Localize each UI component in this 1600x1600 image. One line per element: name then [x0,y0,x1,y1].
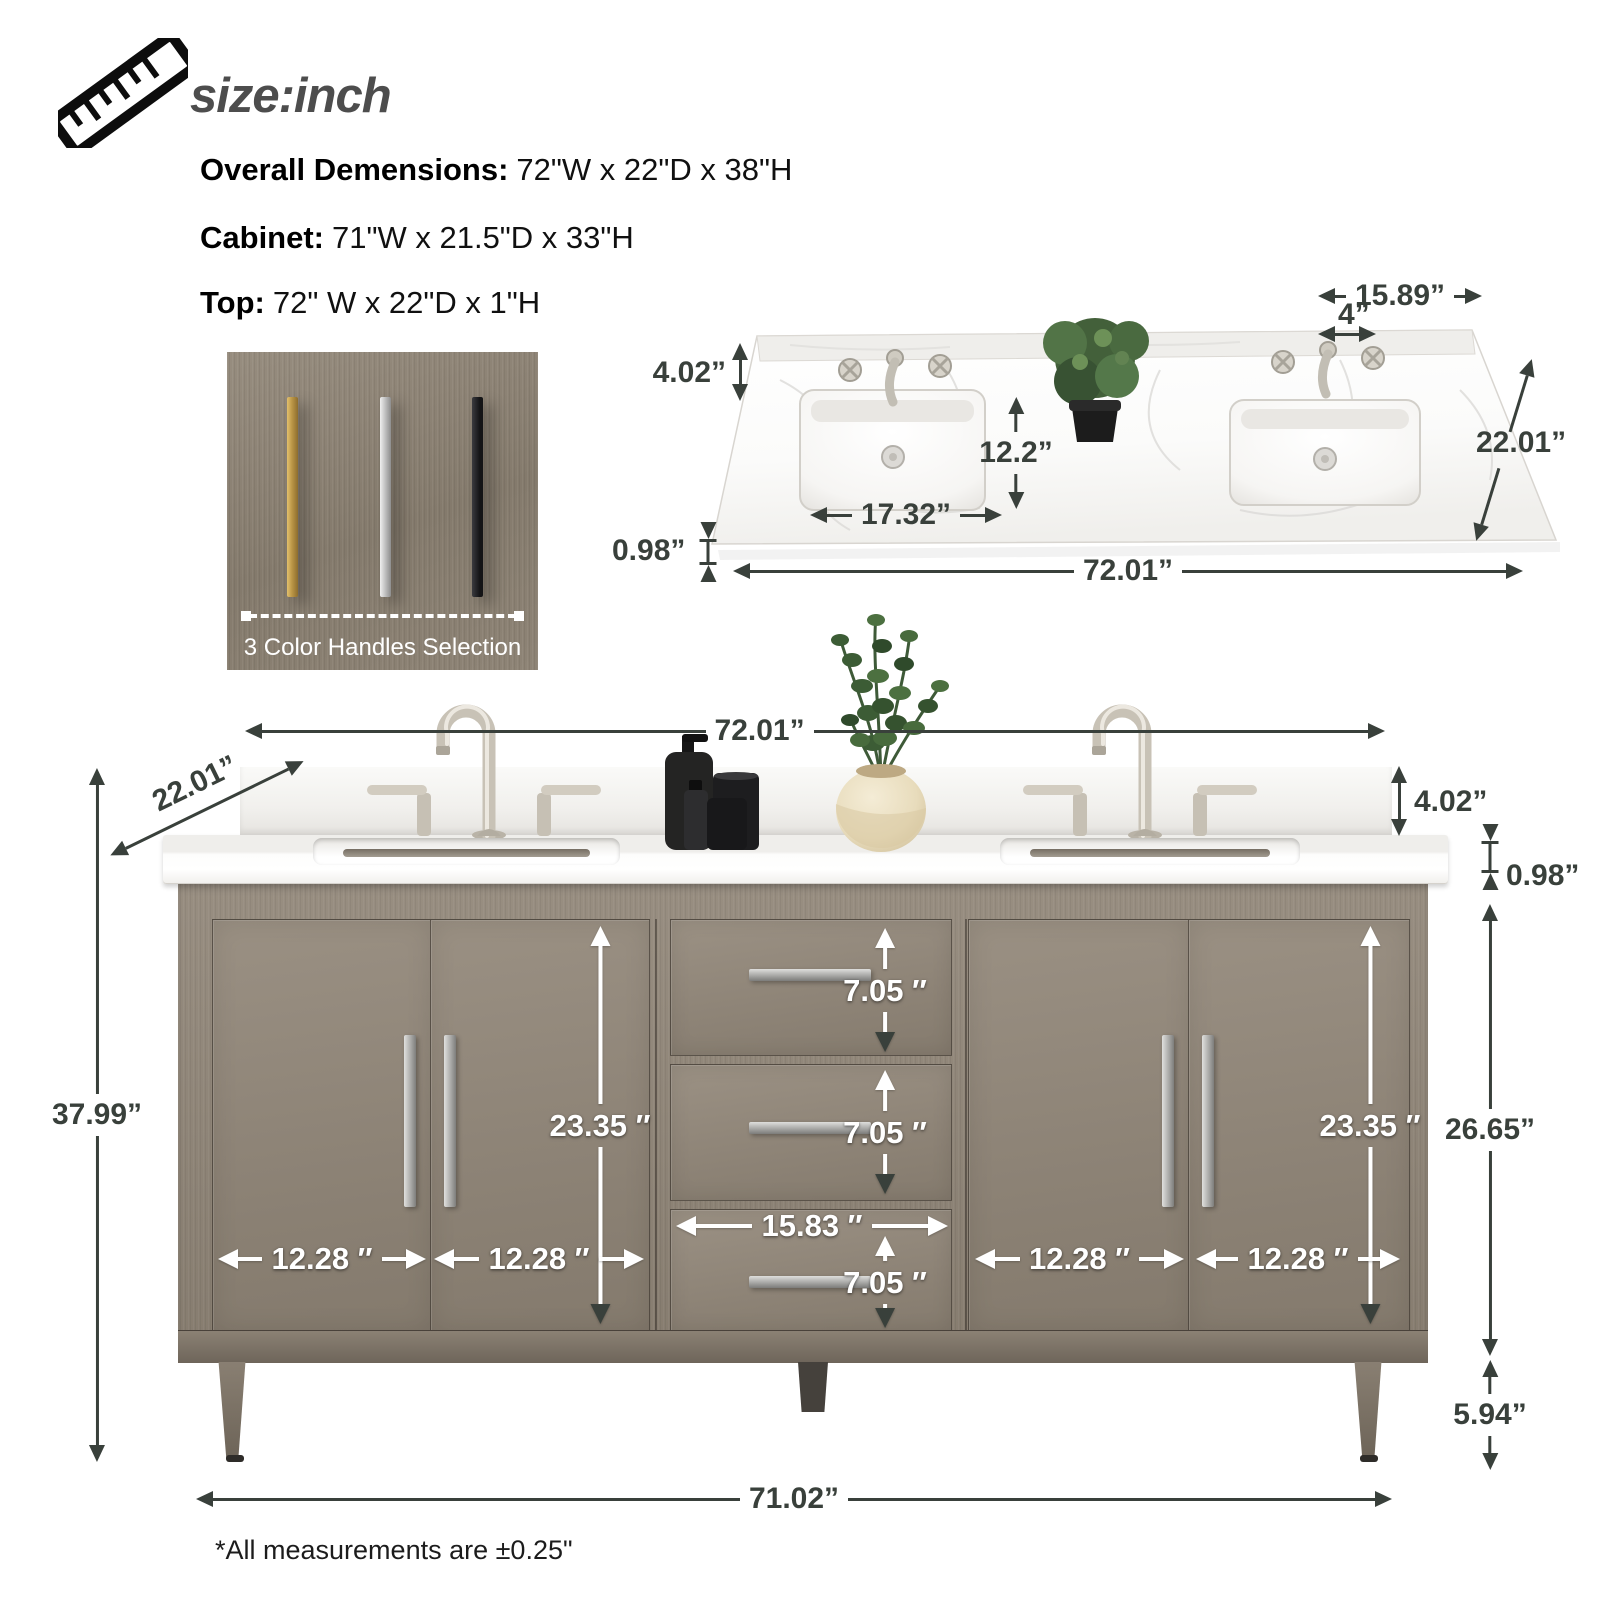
dim-drawer-2: 7.05 ″ [841,1070,929,1194]
dim-top-backsplash-arrow [732,343,748,401]
dim-top-sink-width: 17.32” [810,500,1002,530]
dim-top-thickness-label: 0.98” [612,536,685,566]
vanity-leg-center [798,1362,828,1412]
cabinet-divider-left [655,919,657,1330]
dim-top-depth-label: 22.01” [1476,428,1566,458]
spec-cabinet: Cabinet:71"W x 21.5"D x 33"H [200,220,634,256]
sink-left-opening [343,849,590,857]
dim-vanity-top-thickness-label: 0.98” [1506,861,1579,891]
dim-cabinet-height: 26.65” [1443,904,1537,1356]
dim-vanity-top-thickness-arrow [1482,824,1499,890]
dim-vanity-width: 72.01” [245,716,1385,746]
dim-door-2: 12.28 ″ [434,1243,644,1274]
handle-option-black [472,397,483,597]
spec-overall-value: 72"W x 22"D x 38"H [516,152,792,187]
cabinet-divider-right [965,919,967,1330]
dim-top-thickness-arrow [700,522,717,582]
page-title: size:inch [190,68,391,124]
dim-vanity-height: 37.99” [50,768,144,1462]
door-handle-4 [1202,1035,1214,1207]
dim-top-backsplash-label: 4.02” [640,358,726,388]
sink-right-opening [1030,849,1270,857]
handle-option-gold [287,397,298,597]
divider-endpoint-right [514,611,524,621]
spec-overall: Overall Demensions:72"W x 22"D x 38"H [200,152,792,188]
spec-cabinet-label: Cabinet: [200,220,324,255]
faucet-right-front [1015,688,1265,838]
spec-top: Top:72" W x 22"D x 1"H [200,285,540,321]
dim-vanity-backsplash-label: 4.02” [1414,787,1487,817]
door-handle-1 [404,1035,416,1207]
dim-top-sink-setback: 12.2” [977,397,1054,509]
dim-leg-height: 5.94” [1451,1360,1528,1470]
door-handle-2 [444,1035,456,1207]
dim-door-4: 12.28 ″ [1196,1243,1400,1274]
ruler-icon [58,38,188,148]
dim-door-1: 12.28 ″ [218,1243,426,1274]
dim-top-width: 72.01” [733,556,1523,586]
cabinet-bottom-rail [178,1330,1428,1363]
spec-cabinet-value: 71"W x 21.5"D x 33"H [332,220,634,255]
product-dimension-diagram: size:inch Overall Demensions:72"W x 22"D… [0,0,1600,1600]
dim-vanity-backsplash-arrow [1391,766,1407,836]
footnote: *All measurements are ±0.25" [215,1535,573,1566]
divider-endpoint-left [241,611,251,621]
dim-drawer-1: 7.05 ″ [841,928,929,1052]
dim-base-width: 71.02” [196,1484,1392,1514]
handles-caption: 3 Color Handles Selection [227,634,538,662]
vanity-cabinet [178,884,1428,1362]
vanity-leg-left [216,1362,248,1458]
spec-overall-label: Overall Demensions: [200,152,508,187]
dim-drawer-3: 7.05 ″ [841,1236,929,1328]
handle-option-silver [380,397,391,597]
vanity-foot-left [226,1455,244,1462]
handles-divider [249,614,516,618]
sink-right-front [1000,838,1300,865]
spec-top-label: Top: [200,285,265,320]
dim-door-3: 12.28 ″ [975,1243,1184,1274]
door-handle-3 [1162,1035,1174,1207]
spec-top-value: 72" W x 22"D x 1"H [273,285,540,320]
faucet-left-front [359,688,609,838]
dim-top-faucet-spread-arrow [1318,326,1376,342]
vanity-foot-right [1360,1455,1378,1462]
sink-left-front [313,838,620,865]
vanity-leg-right [1352,1362,1384,1458]
handles-selection-panel: 3 Color Handles Selection [227,352,538,670]
